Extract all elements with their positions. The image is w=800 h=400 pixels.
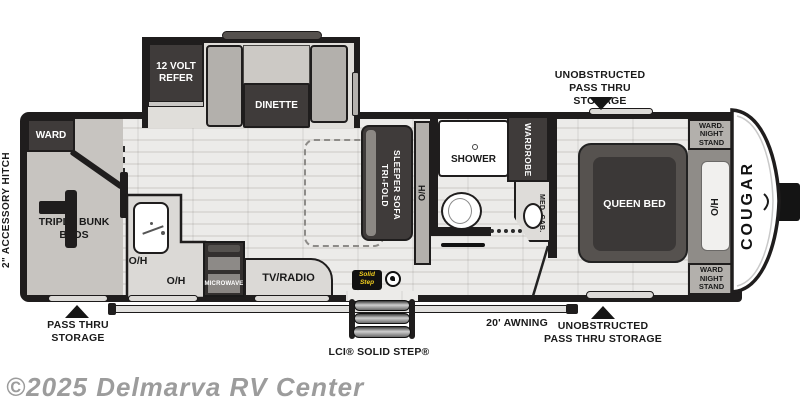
tv-radio-cabinet: TV/RADIO — [244, 258, 333, 297]
overhead-sofa-label: O/H — [417, 173, 428, 213]
awning-bar — [112, 305, 574, 313]
front-storage-line2: PASS THRU STORAGE — [544, 333, 662, 346]
wardrobe-rear: WARD — [27, 119, 75, 152]
solid-step-badge: Solid Step — [352, 270, 382, 290]
compartment-handle — [48, 295, 108, 302]
solid-step-label: LCI® SOLID STEP® — [327, 346, 431, 359]
slideout-window — [352, 72, 359, 116]
arrow-up-icon — [65, 305, 89, 318]
step-tread — [353, 326, 411, 338]
door-swing-line — [528, 242, 552, 300]
kitchen-sink — [133, 202, 169, 254]
shower: SHOWER — [438, 120, 509, 177]
range-microwave: MICROWAVE — [203, 241, 245, 297]
refrigerator-label: 12 VOLT REFER — [152, 61, 200, 85]
top-storage-line1: UNOBSTRUCTED — [542, 69, 658, 82]
sofa-label-line2: SLEEPER SOFA — [392, 133, 402, 237]
solid-step-badge-line1: Solid — [352, 270, 382, 279]
sofa-label-line1: TRI-FOLD — [380, 133, 390, 237]
toilet-seat — [448, 198, 472, 224]
queen-bed: QUEEN BED — [578, 143, 688, 263]
arrow-up-icon — [591, 306, 615, 319]
range-knobs — [208, 245, 240, 252]
hitch-receiver — [39, 201, 67, 214]
rv-floorplan: 2" ACCESSORY HITCH 12 VOLT REFER DINETTE… — [0, 0, 800, 400]
bath-sink — [523, 203, 543, 229]
slideout-handle — [222, 31, 322, 40]
arrow-down-icon — [589, 97, 613, 110]
nightstand-bottom-label: WARD NIGHT STAND — [691, 266, 732, 292]
bath-left-wall — [430, 115, 438, 236]
faucet-knob2 — [150, 222, 153, 225]
dinette-back-cushion — [243, 45, 310, 85]
dinette-bench-right — [310, 45, 348, 123]
step-tread — [354, 313, 410, 324]
towel-bar — [441, 243, 485, 247]
rear-storage-line2: STORAGE — [27, 332, 129, 345]
overhead-label-counter: O/H — [160, 275, 192, 287]
faucet-knob — [161, 231, 165, 235]
awning-end-right — [566, 304, 578, 314]
microwave-band: MICROWAVE — [208, 274, 240, 293]
bath-sliding-door — [490, 229, 522, 233]
sofa-armrest — [366, 130, 376, 236]
compartment-handle — [254, 295, 330, 302]
rear-storage-callout: PASS THRU STORAGE — [27, 319, 129, 345]
microwave-window — [208, 257, 240, 270]
wardrobe-bath-label: WARDROBE — [523, 121, 533, 179]
compartment-handle — [586, 291, 654, 299]
trifold-sofa: TRI-FOLD SLEEPER SOFA — [361, 125, 413, 241]
nightstand-top-label: WARD. NIGHT STAND — [691, 122, 732, 148]
queen-bed-label: QUEEN BED — [603, 198, 665, 210]
refrigerator-trim — [148, 101, 204, 107]
overhead-cabinet-sofa: O/H — [414, 121, 431, 265]
dinette-label: DINETTE — [255, 100, 298, 111]
solid-step-badge-line2: Step — [352, 279, 382, 287]
wardrobe-rear-label: WARD — [36, 130, 67, 141]
shower-label: SHOWER — [440, 154, 507, 165]
lci-logo-mark — [390, 276, 395, 281]
compartment-handle — [128, 295, 198, 302]
bunk-ladder-bar — [65, 190, 77, 248]
dealer-watermark: ©2025 Delmarva RV Center — [6, 372, 456, 400]
awning-end-left — [108, 303, 116, 315]
tv-radio-label: TV/RADIO — [262, 272, 315, 284]
dinette-bench-left — [206, 45, 243, 127]
overhead-label-sink: O/H — [124, 255, 152, 267]
dinette-table: DINETTE — [243, 83, 310, 128]
rear-storage-line1: PASS THRU — [27, 319, 129, 332]
refrigerator: 12 VOLT REFER — [148, 43, 204, 103]
queen-bed-mattress: QUEEN BED — [593, 157, 676, 251]
overhead-bed-label: O/H — [710, 187, 722, 227]
awning-label: 20' AWNING — [468, 317, 566, 330]
pocket-door-track — [123, 146, 125, 174]
toilet — [441, 192, 482, 230]
brand-logo: COUGAR — [739, 142, 765, 268]
step-tread — [354, 300, 410, 311]
accessory-hitch-label: 2" ACCESSORY HITCH — [1, 146, 18, 274]
lci-logo-circle — [385, 271, 401, 287]
shower-drain — [472, 144, 478, 150]
wardrobe-bath: WARDROBE — [507, 116, 549, 182]
microwave-label: MICROWAVE — [204, 281, 243, 287]
overhead-cabinet-bed: O/H — [701, 161, 730, 251]
